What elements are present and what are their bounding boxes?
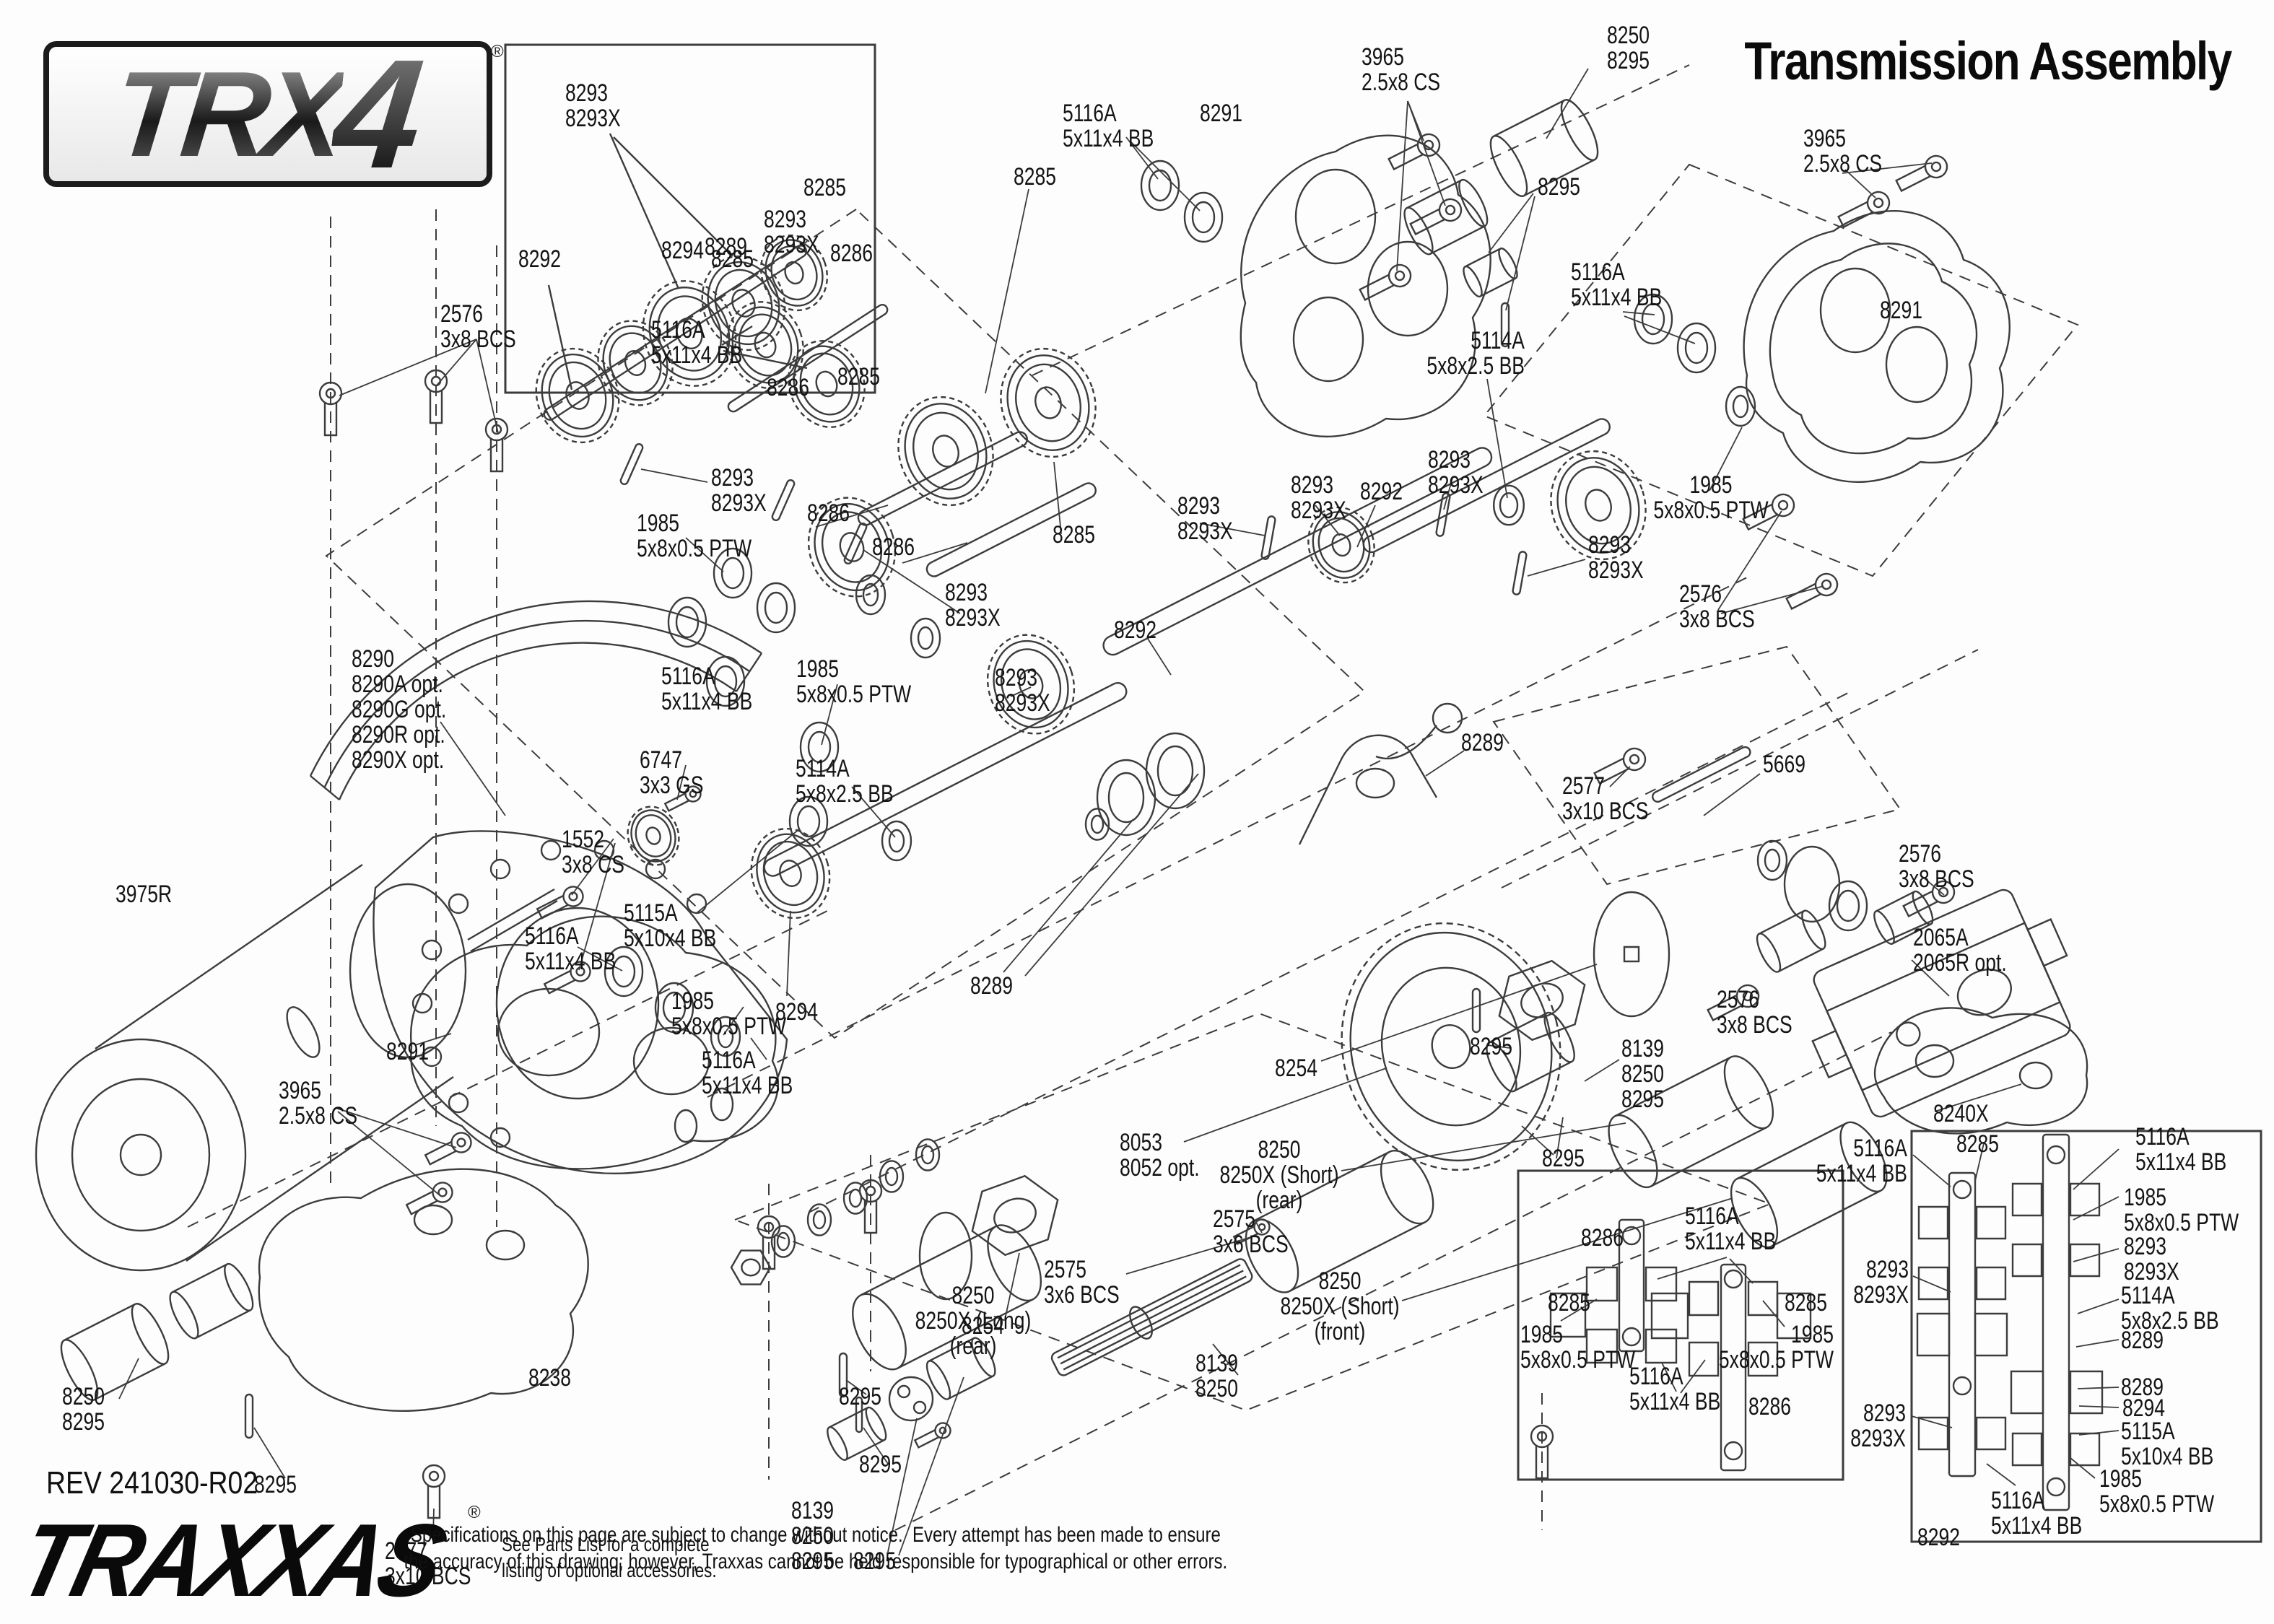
part-label: 8295 bbox=[1538, 175, 1593, 200]
part-label: 3965 2.5x8 CS bbox=[279, 1078, 380, 1129]
trx4-logo-text: TRX bbox=[107, 45, 347, 184]
registered-mark: ® bbox=[468, 1503, 481, 1523]
part-label: 5116A 5x11x4 BB bbox=[1790, 1136, 1907, 1187]
part-label: 8286 bbox=[1748, 1394, 1803, 1420]
part-label: 5116A 5x11x4 BB bbox=[651, 318, 768, 368]
part-label: 5116A 5x11x4 BB bbox=[2135, 1125, 2252, 1175]
part-label: 5116A 5x11x4 BB bbox=[1063, 101, 1180, 152]
part-label: 8291 bbox=[1200, 101, 1255, 126]
part-label: 8250 8295 bbox=[62, 1384, 117, 1435]
part-label: 8250 8250X (Long) (rear) bbox=[899, 1283, 1047, 1359]
part-label: 5116A 5x11x4 BB bbox=[1685, 1204, 1802, 1254]
part-label: 1985 5x8x0.5 PTW bbox=[2099, 1467, 2247, 1517]
part-label: 8295 bbox=[254, 1472, 309, 1498]
part-label: 8289 bbox=[1461, 730, 1516, 756]
part-label: 8250 8295 bbox=[1607, 23, 1662, 74]
part-label: 8291 bbox=[1880, 298, 1935, 323]
part-label: 5116A 5x11x4 BB bbox=[1629, 1364, 1746, 1415]
part-label: 5114A 5x8x2.5 BB bbox=[796, 756, 921, 807]
part-label: 8295 bbox=[839, 1384, 894, 1410]
part-label: 8285 bbox=[837, 364, 892, 390]
part-label: 8285 bbox=[711, 247, 766, 272]
part-label: 8285 bbox=[1548, 1291, 1603, 1316]
part-label: 8294 bbox=[775, 1000, 830, 1025]
part-label: 2575 3x6 BCS bbox=[1213, 1207, 1310, 1257]
part-label: 2577 3x10 BCS bbox=[1562, 774, 1673, 824]
part-label: 3975R bbox=[116, 882, 188, 907]
part-label: 8286 bbox=[1581, 1226, 1636, 1251]
part-label: 8293 8293X bbox=[1588, 533, 1659, 583]
part-label: 8286 bbox=[830, 241, 885, 266]
part-label: 8293 8293X bbox=[1291, 473, 1362, 523]
part-label: 8293 8293X bbox=[1838, 1257, 1909, 1308]
part-label: 8250 8250X (Short) (rear) bbox=[1203, 1138, 1356, 1213]
part-label: 8285 bbox=[803, 175, 858, 201]
part-label: 1985 5x8x0.5 PTW bbox=[637, 511, 784, 562]
part-label: 2576 3x8 BCS bbox=[1899, 842, 1995, 892]
part-label: 8293 8293X bbox=[565, 81, 636, 131]
part-label: 2576 3x8 BCS bbox=[1679, 582, 1776, 632]
part-label: 8293 8293X bbox=[764, 207, 835, 258]
part-label: 8289 bbox=[2121, 1328, 2176, 1353]
part-label: 8254 bbox=[1275, 1056, 1330, 1081]
disclaimer-text: Specifications on this page are subject … bbox=[274, 1522, 1357, 1575]
part-label: 5116A 5x11x4 BB bbox=[702, 1048, 819, 1099]
part-label: 5115A 5x10x4 BB bbox=[2121, 1419, 2239, 1470]
trx4-logo-number: 4 bbox=[326, 41, 431, 187]
part-label: 8238 bbox=[528, 1366, 583, 1391]
part-label: 1552 3x8 CS bbox=[562, 827, 642, 878]
part-label: 5116A 5x11x4 BB bbox=[1571, 260, 1688, 310]
part-label: 8289 bbox=[970, 974, 1025, 999]
part-label: 8293 8293X bbox=[711, 466, 782, 516]
part-label: 1985 5x8x0.5 PTW bbox=[1637, 473, 1785, 523]
part-label: 2576 3x8 BCS bbox=[440, 302, 537, 352]
part-label: 8292 bbox=[1114, 618, 1169, 643]
part-label: 8295 bbox=[1542, 1146, 1597, 1171]
part-label: 8294 bbox=[661, 238, 716, 263]
registered-mark: ® bbox=[491, 42, 504, 62]
part-label: 8292 bbox=[518, 247, 573, 272]
part-label: 5669 bbox=[1763, 752, 1818, 777]
revision-code: REV 241030-R02 bbox=[46, 1465, 258, 1501]
trx4-logo: TRX4 bbox=[43, 41, 492, 187]
exploded-parts-diagram: TRX4 ® Transmission Assembly 8293 8293X8… bbox=[0, 0, 2274, 1624]
part-label: 8285 bbox=[1053, 523, 1107, 548]
part-label: 8295 bbox=[859, 1452, 914, 1477]
diagram-artwork bbox=[0, 0, 2274, 1624]
part-label: 8240X bbox=[1933, 1101, 2004, 1127]
part-label: 8286 bbox=[767, 375, 822, 401]
part-label: 3965 2.5x8 CS bbox=[1362, 45, 1463, 95]
part-label: 1985 5x8x0.5 PTW bbox=[2124, 1185, 2271, 1236]
part-label: 2575 3x6 BCS bbox=[1044, 1257, 1141, 1308]
part-label: 8285 bbox=[1956, 1132, 2011, 1157]
part-label: 8295 bbox=[1470, 1034, 1525, 1060]
page-title: Transmission Assembly bbox=[1744, 30, 2231, 92]
part-label: 5114A 5x8x2.5 BB bbox=[1399, 328, 1525, 379]
part-label: 3965 2.5x8 CS bbox=[1803, 126, 1904, 177]
part-label: 8250 8250X (Short) (front) bbox=[1263, 1269, 1416, 1345]
part-label: 8286 bbox=[807, 501, 862, 526]
part-label: 5116A 5x11x4 BB bbox=[525, 924, 642, 974]
part-label: 8139 8250 8295 bbox=[1621, 1036, 1676, 1112]
part-label: 1985 5x8x0.5 PTW bbox=[796, 657, 944, 707]
part-label: 8285 bbox=[1785, 1291, 1839, 1316]
part-label: 8291 bbox=[386, 1039, 441, 1065]
part-label: 8292 bbox=[1917, 1525, 1972, 1550]
part-label: 8285 bbox=[1014, 165, 1068, 190]
part-label: 8139 8250 bbox=[1195, 1351, 1250, 1402]
part-label: 8293 8293X bbox=[995, 665, 1066, 716]
part-label: 5116A 5x11x4 BB bbox=[1991, 1488, 2108, 1539]
part-label: 8286 bbox=[872, 535, 927, 560]
part-label: 2065A 2065R opt. bbox=[1913, 925, 2033, 976]
part-label: 8293 8293X bbox=[1835, 1401, 1906, 1451]
part-label: 8290 8290A opt. 8290G opt. 8290R opt. 82… bbox=[352, 647, 473, 773]
part-label: 8292 bbox=[1360, 479, 1415, 505]
part-label: 5116A 5x11x4 BB bbox=[661, 664, 778, 715]
part-label: 8293 8293X bbox=[1177, 494, 1248, 544]
part-label: 8293 8293X bbox=[1428, 448, 1499, 498]
disclaimer-lines: Specifications on this page are subject … bbox=[404, 1522, 1228, 1575]
part-label: 6747 3x3 GS bbox=[640, 748, 721, 798]
part-label: 8293 8293X bbox=[2124, 1234, 2195, 1285]
part-label: 8293 8293X bbox=[945, 580, 1016, 631]
part-label: 2576 3x8 BCS bbox=[1717, 987, 1813, 1038]
